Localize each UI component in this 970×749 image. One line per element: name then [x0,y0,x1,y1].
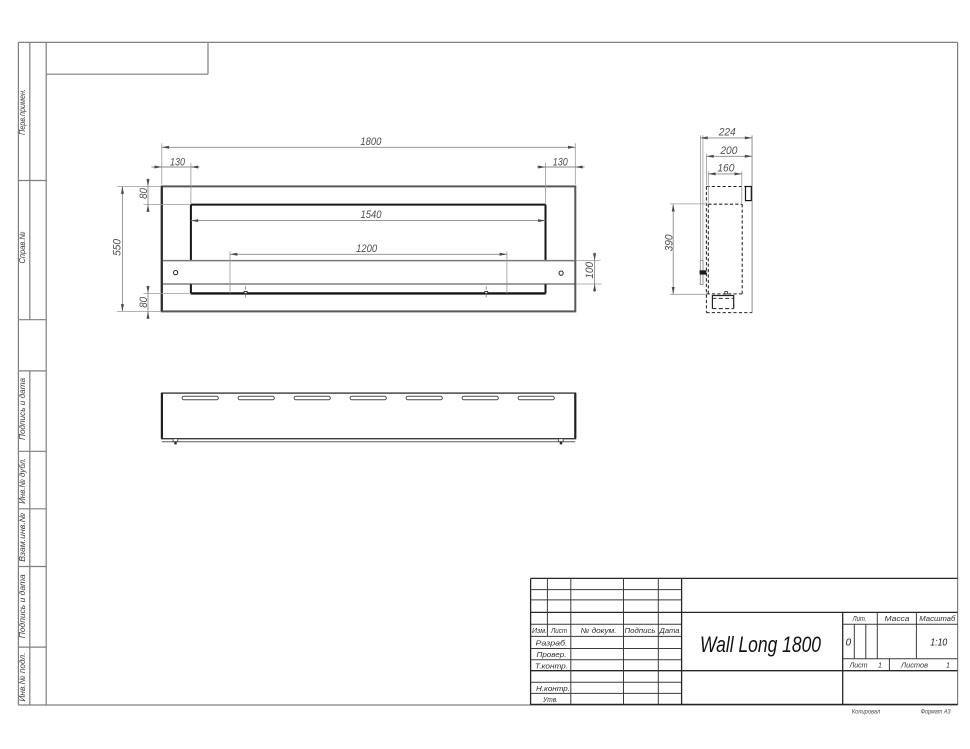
svg-text:Провер.: Провер. [537,650,567,659]
svg-text:80: 80 [138,187,150,199]
svg-text:224: 224 [718,126,736,138]
svg-text:100: 100 [584,261,596,279]
svg-text:1540: 1540 [361,209,383,221]
svg-text:Масштаб: Масштаб [919,614,956,623]
svg-text:1: 1 [946,661,950,670]
svg-text:Масса: Масса [885,614,910,623]
svg-text:Листов: Листов [900,661,928,670]
svg-text:Инв.№ дубл.: Инв.№ дубл. [18,458,27,504]
svg-text:0: 0 [846,637,852,648]
svg-text:Лист: Лист [849,661,868,670]
svg-text:Изм.: Изм. [532,626,547,635]
svg-text:Лит.: Лит. [852,614,867,623]
svg-text:160: 160 [717,162,735,174]
svg-text:Подпись и дата: Подпись и дата [18,378,27,440]
svg-text:1200: 1200 [356,243,378,255]
svg-text:390: 390 [664,234,676,252]
svg-text:130: 130 [553,156,569,168]
svg-text:№ докум.: № докум. [581,626,617,635]
svg-text:Т.контр.: Т.контр. [535,661,568,670]
svg-text:Справ.№: Справ.№ [18,231,27,263]
svg-text:80: 80 [138,296,150,308]
svg-text:Формат А3: Формат А3 [921,708,951,715]
svg-text:1:10: 1:10 [930,637,947,648]
svg-text:Лист: Лист [550,626,567,635]
svg-text:Копировал: Копировал [852,708,881,715]
svg-text:130: 130 [170,156,186,168]
svg-text:Разраб.: Разраб. [536,639,568,648]
svg-text:Подпись и дата: Подпись и дата [18,574,27,638]
svg-text:Подпись: Подпись [625,626,656,635]
svg-text:Взам.инв.№: Взам.инв.№ [18,513,27,562]
svg-text:Н.контр.: Н.контр. [536,684,570,693]
svg-text:Утв.: Утв. [542,695,558,704]
svg-text:Wall Long 1800: Wall Long 1800 [700,632,821,657]
svg-text:1800: 1800 [360,136,382,148]
svg-text:550: 550 [111,238,123,256]
svg-text:Инв.№ подл.: Инв.№ подл. [18,653,27,702]
svg-text:200: 200 [719,145,738,157]
svg-text:1: 1 [878,661,882,670]
svg-text:Перв.примен.: Перв.примен. [18,89,27,135]
svg-text:Дата: Дата [658,626,679,635]
